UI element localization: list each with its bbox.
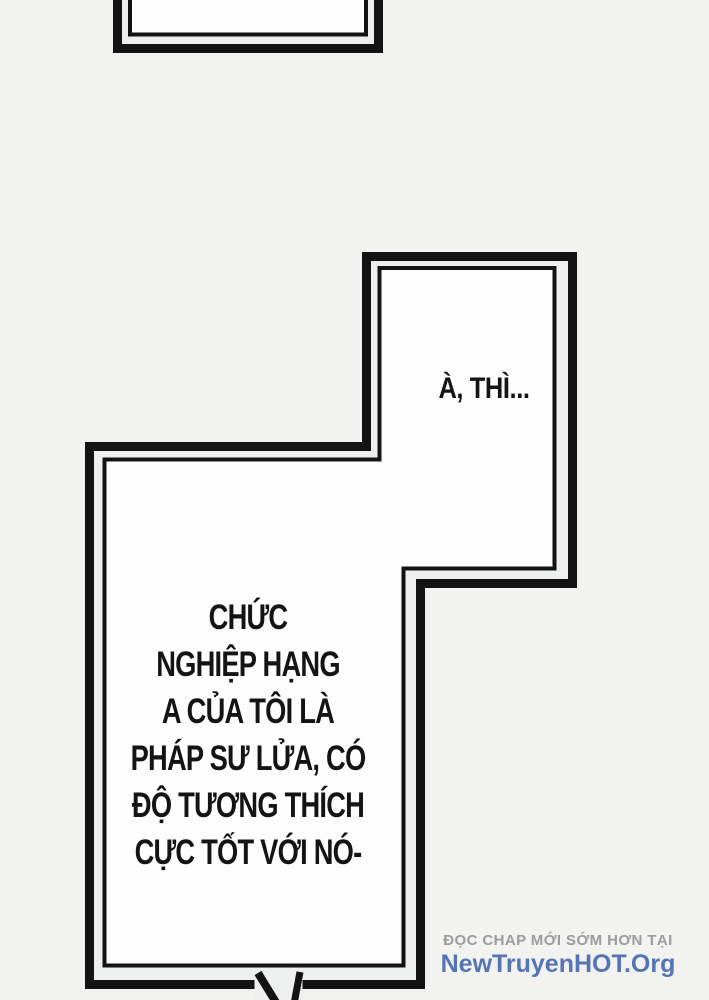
top-partial-bubble-inner-border <box>130 0 366 35</box>
speech-line: CHỨC <box>128 594 368 641</box>
comic-page: À, THÌ... CHỨC NGHIỆP HẠNG A CỦA TÔI LÀ … <box>0 0 709 1000</box>
speech-line: CỰC TỐT VỚI NÓ- <box>128 829 368 876</box>
watermark-site-name: NewTruyenHOT.Org <box>413 950 703 978</box>
speech-text-main: CHỨC NGHIỆP HẠNG A CỦA TÔI LÀ PHÁP SƯ LỬ… <box>128 594 368 876</box>
speech-line: A CỦA TÔI LÀ <box>128 688 368 735</box>
top-partial-bubble <box>118 0 379 49</box>
speech-text-reply: À, THÌ... <box>408 372 561 406</box>
watermark: ĐỌC CHAP MỚI SỚM HƠN TẠI NewTruyenHOT.Or… <box>413 931 703 978</box>
watermark-tagline: ĐỌC CHAP MỚI SỚM HƠN TẠI <box>413 931 703 950</box>
speech-line: ĐỘ TƯƠNG THÍCH <box>128 782 368 829</box>
speech-line: NGHIỆP HẠNG <box>128 641 368 688</box>
speech-line: PHÁP SƯ LỬA, CÓ <box>128 735 368 782</box>
